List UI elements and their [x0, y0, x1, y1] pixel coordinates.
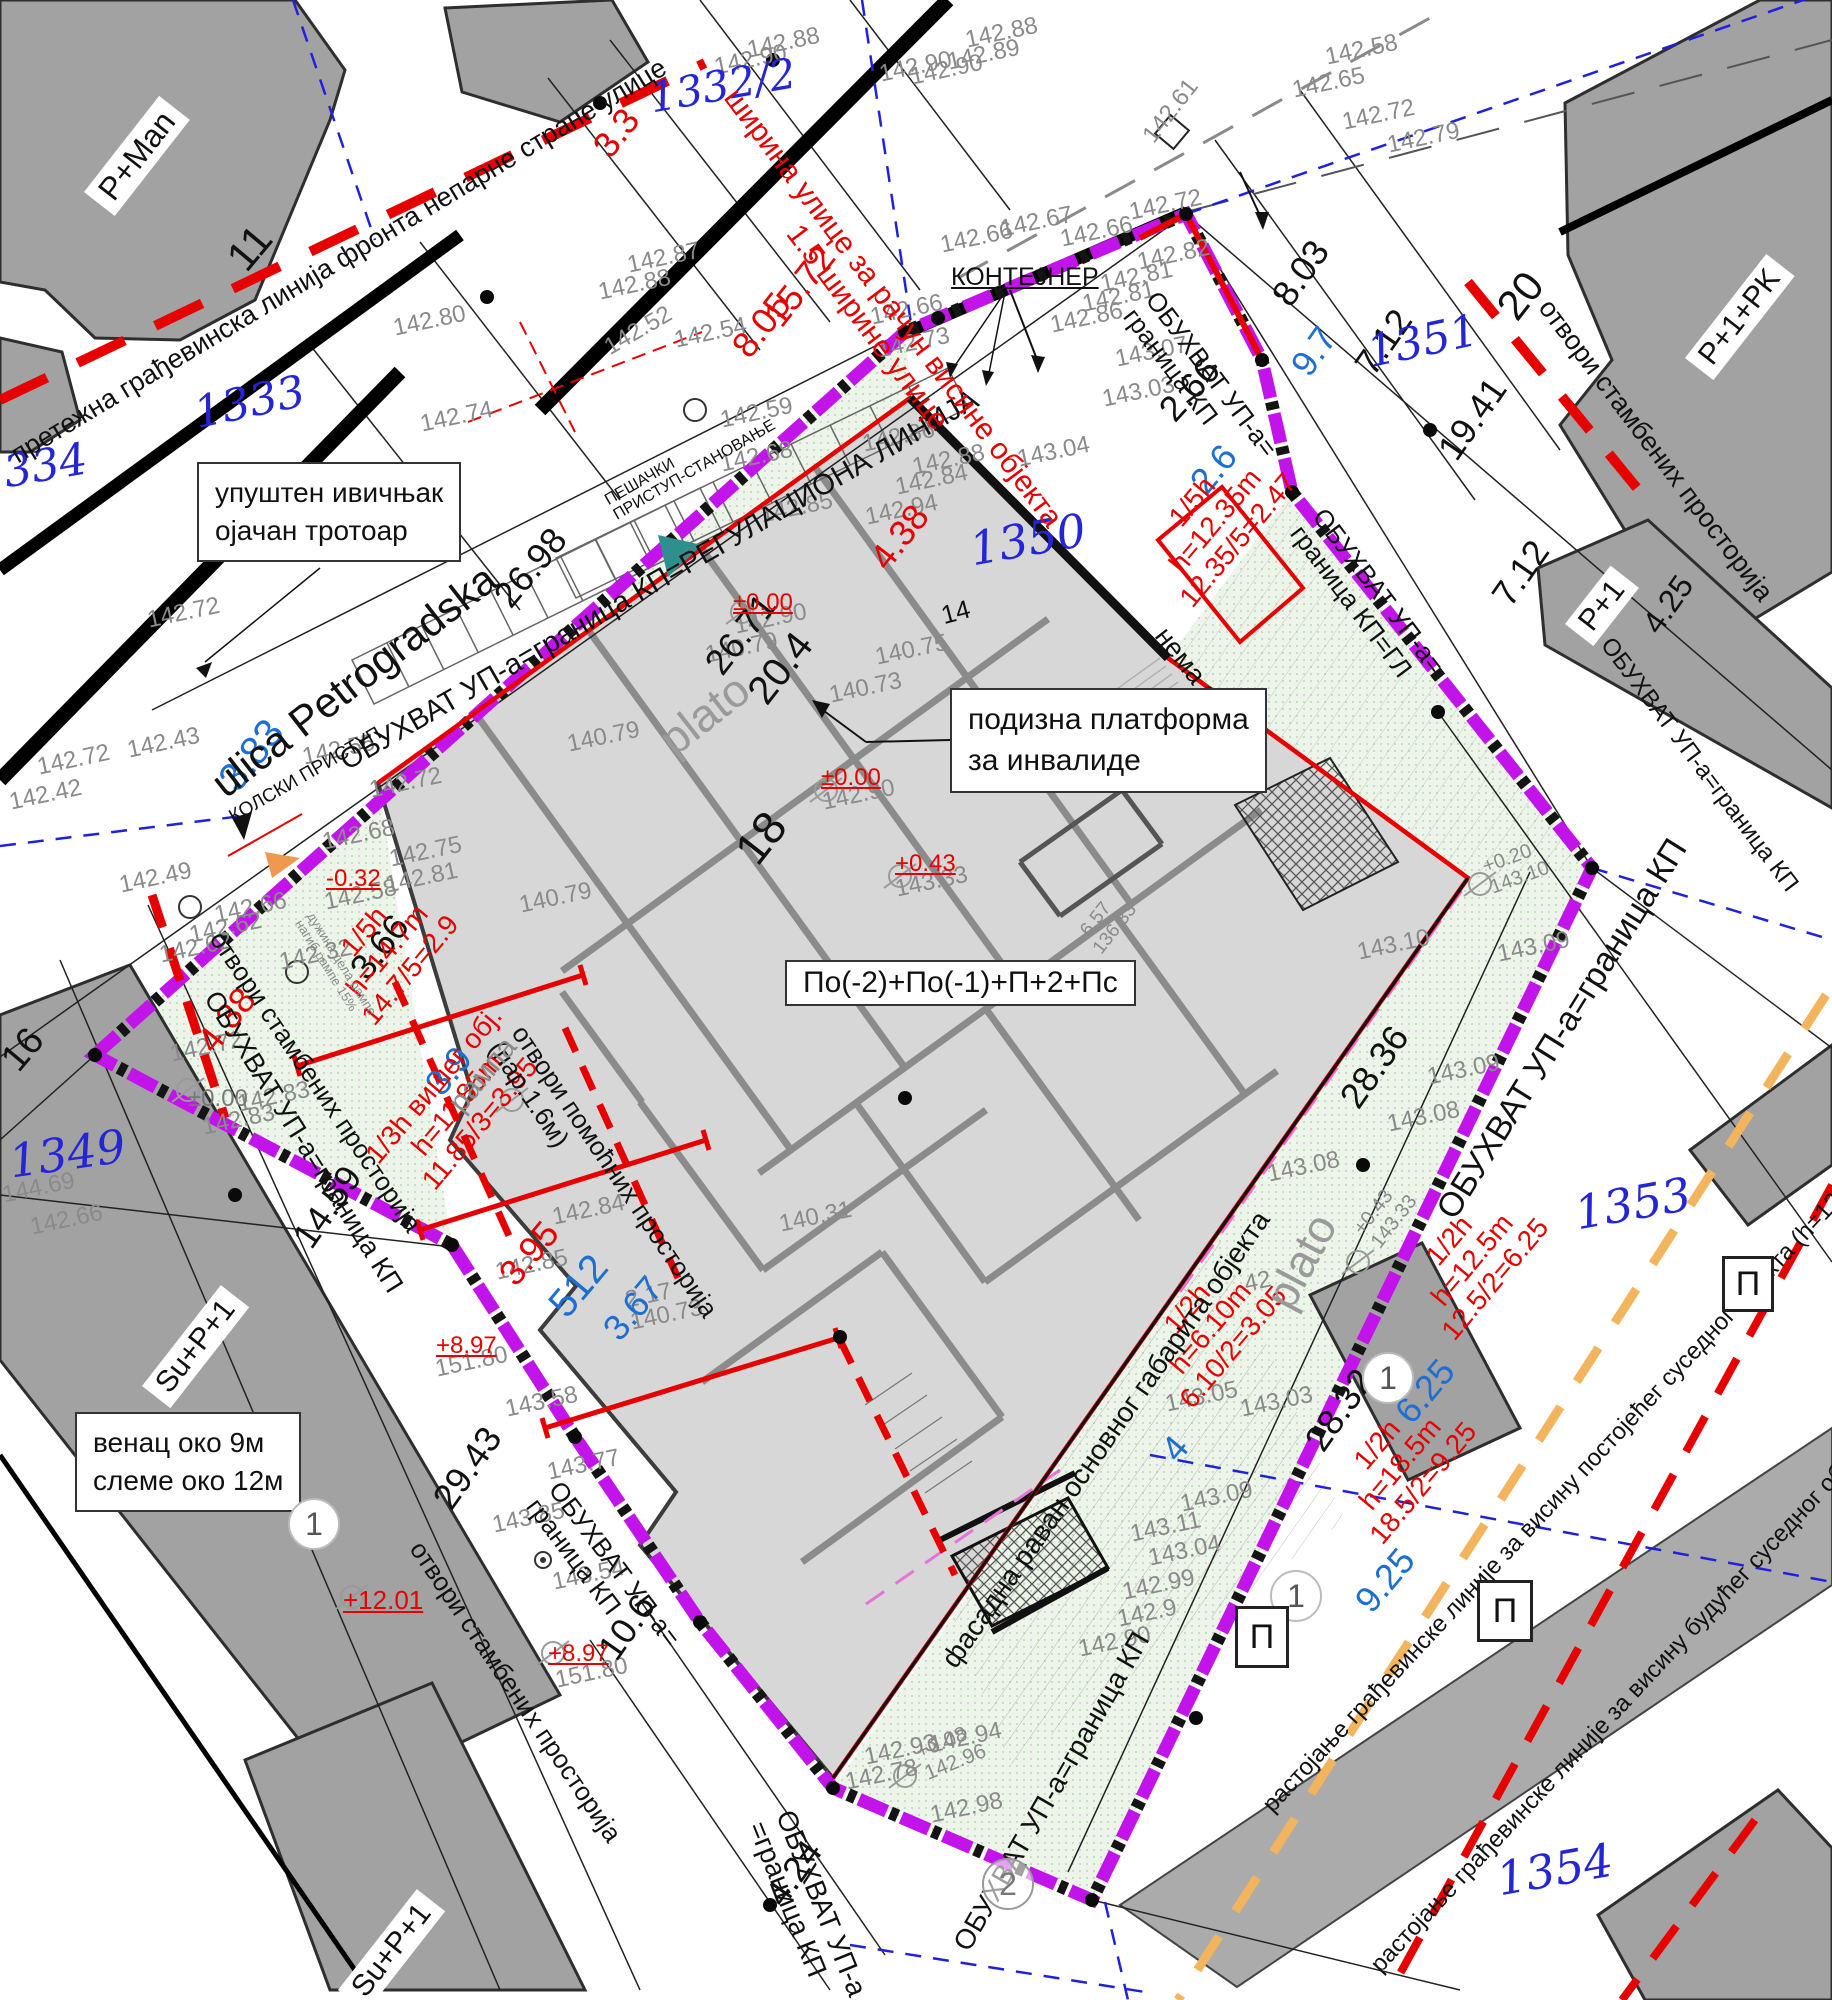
house-number: 14	[938, 595, 973, 630]
dimension-blue: 4	[1154, 1429, 1197, 1469]
house-number: 18	[726, 803, 797, 874]
house-number: 16	[0, 1021, 53, 1080]
spot-elevation: 142.66	[938, 218, 1015, 259]
dimension: 29.43	[426, 1420, 510, 1516]
level-mark: ±0.00	[733, 590, 793, 616]
level-mark: +8.97	[548, 1641, 609, 1667]
spot-elevation: 143.77	[545, 1445, 622, 1486]
building-label: P+Man	[84, 96, 190, 216]
level-mark: ±0.00	[821, 765, 881, 791]
level-mark: +0.43	[895, 851, 956, 877]
level-mark: +12.01	[343, 1586, 423, 1614]
spot-elevation: 142.72	[367, 763, 444, 804]
spot-elevation: 142.74	[418, 397, 495, 438]
spot-elevation: 140.31	[777, 1197, 854, 1238]
platform-note-box: подизна платформа за инвалиде	[950, 688, 1267, 793]
building-label: P+1+PK	[1685, 254, 1795, 380]
spot-elevation: 142.72	[1127, 185, 1204, 226]
spot-elevation: 143.09	[1425, 1050, 1502, 1091]
spot-elevation: -6.57 136.33	[1073, 887, 1141, 958]
position-marker-circle: 2	[982, 1858, 1034, 1910]
spot-elevation: 140.75	[873, 630, 950, 671]
spot-elevation: 142.68	[320, 815, 397, 856]
parking-sign: П	[1722, 1256, 1774, 1312]
boundary-label: ОБУХВАТ УП-а =граница КП	[742, 1806, 872, 2000]
building-label: P+1	[1565, 566, 1639, 647]
parking-sign: П	[1477, 1580, 1533, 1642]
spot-elevation: 142.61	[1138, 74, 1204, 148]
spot-elevation: 143.03	[1238, 1382, 1315, 1423]
level-mark: ±0.00	[188, 1086, 248, 1112]
spot-elevation: 142.49	[117, 858, 194, 899]
spot-elevation: 142.78	[843, 1755, 920, 1796]
parcel-number: 1349	[6, 1122, 129, 1187]
dimension: 26.98	[487, 521, 575, 615]
dimension: 4.25	[1636, 569, 1700, 640]
spot-elevation: 142.88	[596, 265, 673, 306]
site-plan: 142.88142.90142.90142.88142.89142.90142.…	[0, 0, 1832, 2000]
spot-elevation: 140.79	[565, 717, 642, 758]
spot-elevation: 142.86	[1048, 298, 1125, 339]
venac-note-box: венац око 9м слеме око 12м	[75, 1412, 301, 1512]
boundary-label: претежна грађевинска линија фронта непар…	[6, 53, 672, 469]
dimension: 8.03	[1265, 234, 1337, 314]
parcel-number: 1353	[1571, 1170, 1695, 1239]
position-marker-circle: 1	[1362, 1352, 1414, 1404]
boundary-label: ОБУХВАТ УП-а= граница КП=ГЛ	[1285, 503, 1450, 696]
parcel-number: 1333	[190, 368, 309, 438]
spot-elevation: 143.08	[1385, 1097, 1462, 1138]
spot-elevation: 140.79	[517, 878, 594, 919]
curb-note-box: упуштен ивичњак ојачан тротоар	[197, 462, 461, 562]
spot-elevation: 143.58	[503, 1382, 580, 1423]
spot-elevation: 143.08	[1265, 1147, 1342, 1188]
boundary-label: ОБУХВАТ УП-а=граница КП	[1595, 633, 1803, 897]
dimension: 7.12	[1485, 534, 1557, 614]
spot-elevation: 143.10	[1355, 925, 1432, 966]
level-mark: -0.32	[326, 866, 381, 892]
building-label: Su+P+1	[338, 1889, 446, 2000]
spot-elevation: 142.65	[1290, 63, 1367, 104]
spot-elevation: 142.80	[391, 301, 468, 342]
spot-elevation: +0.43 143.33	[1350, 1178, 1422, 1253]
spot-elevation: 143.09	[1495, 927, 1572, 968]
main-building-floors-box: По(-2)+По(-1)+П+2+Пс	[785, 960, 1136, 1006]
level-mark: +8.97	[436, 1333, 497, 1359]
spot-elevation: 142.72	[145, 593, 222, 634]
spot-elevation: 142.66	[28, 1200, 105, 1241]
building-label: Su+P+1	[142, 1285, 250, 1409]
dimension: 28.36	[1333, 1019, 1417, 1115]
position-marker-circle: 1	[288, 1498, 340, 1550]
parking-sign: П	[1235, 1606, 1289, 1668]
spot-elevation: 142.52	[600, 301, 677, 360]
spot-elevation: 142.98	[928, 1788, 1005, 1829]
height-rule-formula: 1/5h h=12.35m 12.35/5=2.47	[1128, 429, 1303, 613]
parcel-number: 1354	[1493, 1836, 1617, 1905]
spot-elevation: 142.43	[125, 723, 202, 764]
dimension-blue: 9.7	[1284, 320, 1345, 383]
dimension-blue: 9.25	[1348, 1541, 1423, 1620]
spot-elevation: +0.20 143.10	[1480, 837, 1552, 899]
house-number: 11	[218, 217, 281, 280]
spot-elevation: 142.42	[7, 775, 84, 816]
spot-elevation: 140.73	[827, 668, 904, 709]
openings-label: фасадна раван основног габарита објекта	[936, 1206, 1276, 1674]
dimension: 19.41	[1431, 371, 1515, 467]
container-label: КОНТЕЈНЕР	[951, 264, 1099, 291]
boundary-label: ОБУХВАТ УП-а=граница КП	[1430, 833, 1694, 1226]
